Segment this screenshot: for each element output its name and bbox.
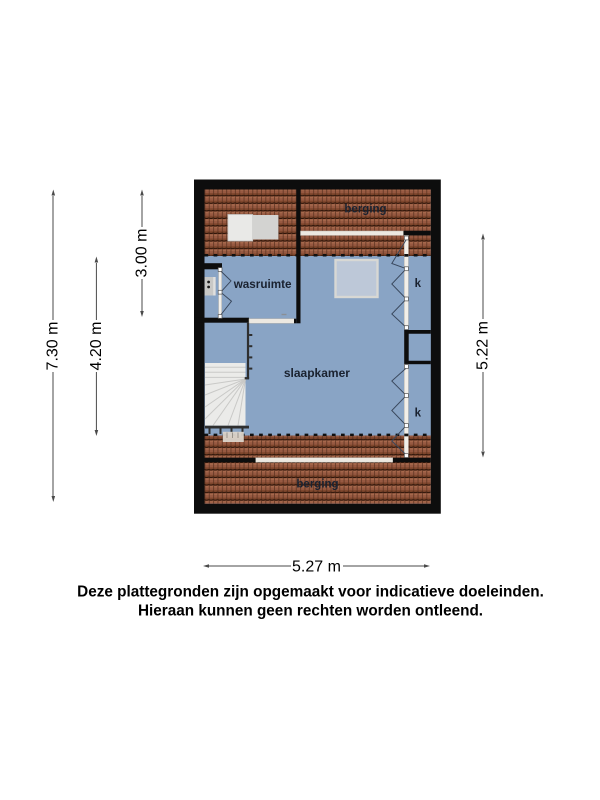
svg-text:Hieraan kunnen geen rechten wo: Hieraan kunnen geen rechten worden ontle… (138, 602, 483, 619)
svg-text:berging: berging (344, 204, 386, 216)
svg-text:wasruimte: wasruimte (233, 278, 292, 291)
svg-text:slaapkamer: slaapkamer (284, 366, 350, 380)
svg-text:Deze plattegronden zijn opgema: Deze plattegronden zijn opgemaakt voor i… (77, 583, 544, 600)
svg-text:5.22 m: 5.22 m (475, 321, 492, 370)
svg-text:3.00 m: 3.00 m (134, 229, 151, 278)
svg-text:5.27 m: 5.27 m (292, 559, 341, 576)
svg-text:4.20 m: 4.20 m (88, 322, 105, 371)
svg-text:7.30 m: 7.30 m (45, 322, 62, 371)
svg-text:berging: berging (296, 479, 338, 491)
svg-text:k: k (415, 408, 422, 420)
svg-text:k: k (415, 278, 422, 290)
